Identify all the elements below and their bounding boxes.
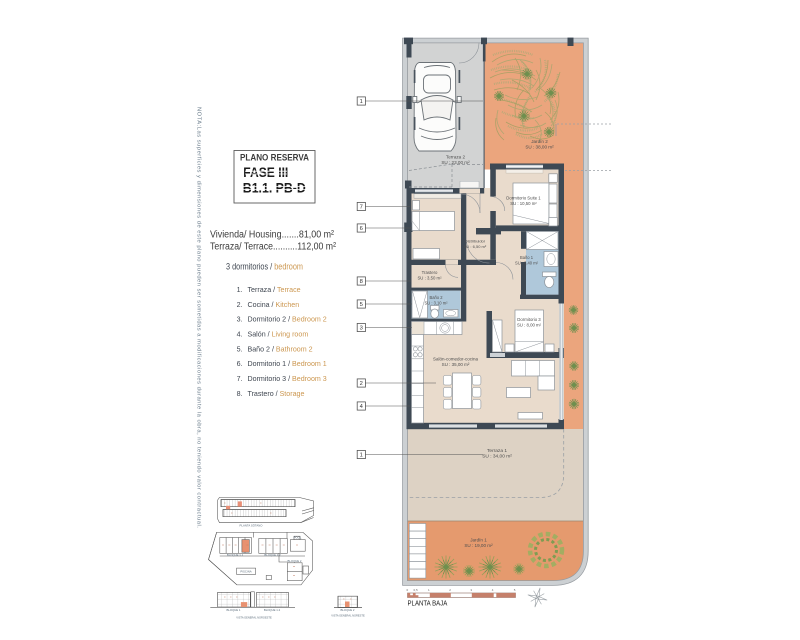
svg-text:Jardín 2: Jardín 2 xyxy=(531,139,548,144)
svg-text:SU : 8,00 m²: SU : 8,00 m² xyxy=(517,323,542,328)
svg-text:BLOQUE 1.2: BLOQUE 1.2 xyxy=(264,608,281,612)
svg-text:6: 6 xyxy=(360,226,363,232)
svg-text:1: 1 xyxy=(360,453,363,459)
svg-text:SU : 6,50 m²: SU : 6,50 m² xyxy=(464,244,487,249)
svg-text:3 dormitorios / bedroom: 3 dormitorios / bedroom xyxy=(226,262,303,272)
svg-text:5.: 5. xyxy=(237,345,243,353)
svg-text:PLANO RESERVA: PLANO RESERVA xyxy=(240,152,309,163)
svg-text:Jardín 1: Jardín 1 xyxy=(470,538,487,543)
svg-text:Salón / Living room: Salón / Living room xyxy=(248,331,309,339)
svg-text:4.: 4. xyxy=(237,331,243,339)
svg-text:1.: 1. xyxy=(237,286,243,294)
svg-text:7.: 7. xyxy=(237,375,243,383)
svg-text:SU : 10,50 m²: SU : 10,50 m² xyxy=(510,201,537,206)
svg-text:VISTA GENERAL NORESTE: VISTA GENERAL NORESTE xyxy=(331,614,365,618)
svg-text:FASE III: FASE III xyxy=(243,165,288,180)
svg-text:SU : 3,40 m²: SU : 3,40 m² xyxy=(515,261,539,266)
svg-text:1: 1 xyxy=(360,99,363,105)
svg-text:SU : 34,00 m²: SU : 34,00 m² xyxy=(482,454,512,460)
svg-text:BLOQUE 2: BLOQUE 2 xyxy=(288,559,302,563)
svg-text:Terraza / Terrace: Terraza / Terrace xyxy=(248,286,301,294)
svg-text:2: 2 xyxy=(360,381,363,387)
svg-text:SU : 38,00 m²: SU : 38,00 m² xyxy=(525,145,554,150)
svg-text:SU : 19,00 m²: SU : 19,00 m² xyxy=(464,543,493,548)
svg-text:Distribuidor: Distribuidor xyxy=(465,239,486,244)
svg-text:Dormitorio 3: Dormitorio 3 xyxy=(517,317,541,322)
svg-text:PLANTA SÓTANO: PLANTA SÓTANO xyxy=(240,522,264,527)
svg-text:SU : 23,00 m²: SU : 23,00 m² xyxy=(441,160,470,165)
svg-text:Dormitorio 2 / Bedroom 2: Dormitorio 2 / Bedroom 2 xyxy=(248,316,327,324)
svg-text:BLOQUE 1.2: BLOQUE 1.2 xyxy=(264,553,281,557)
svg-text:5: 5 xyxy=(360,302,363,308)
svg-text:3.: 3. xyxy=(237,316,243,324)
svg-text:Trastero / Storage: Trastero / Storage xyxy=(248,390,305,398)
svg-text:Baño 2: Baño 2 xyxy=(430,295,444,300)
svg-text:Baño 1: Baño 1 xyxy=(520,255,534,260)
svg-text:Terraza 2: Terraza 2 xyxy=(446,155,466,160)
svg-text:POOL: POOL xyxy=(294,536,302,540)
svg-text:Terraza/ Terrace..........112,: Terraza/ Terrace..........112,00 m² xyxy=(210,242,337,253)
svg-text:Dormitorio 3 / Bedroom 3: Dormitorio 3 / Bedroom 3 xyxy=(248,375,327,383)
svg-text:3: 3 xyxy=(360,326,363,332)
svg-text:SU : 3,10 m²: SU : 3,10 m² xyxy=(425,301,449,306)
svg-text:B1.1. PB-D: B1.1. PB-D xyxy=(243,180,306,196)
svg-text:Dormitorio 1 / Bedroom 1: Dormitorio 1 / Bedroom 1 xyxy=(248,360,327,368)
svg-text:Vivienda/ Housing.......81,00: Vivienda/ Housing.......81,00 m² xyxy=(210,230,335,241)
svg-text:8.: 8. xyxy=(237,390,243,398)
svg-text:2.: 2. xyxy=(237,301,243,309)
svg-text:SU : 3,50 m²: SU : 3,50 m² xyxy=(417,276,442,281)
svg-text:7: 7 xyxy=(360,205,363,211)
svg-text:BLOQUE 1.1: BLOQUE 1.1 xyxy=(227,553,244,557)
svg-text:Trastero: Trastero xyxy=(422,270,438,275)
svg-text:8: 8 xyxy=(360,279,363,285)
svg-text:SU : 35,00 m²: SU : 35,00 m² xyxy=(442,362,470,367)
svg-text:Dormitorio Suite 1: Dormitorio Suite 1 xyxy=(506,196,541,201)
svg-text:NOTA:Las superficies y dimensi: NOTA:Las superficies y dimensiones de es… xyxy=(196,107,202,528)
svg-text:VISTA GENERAL NOROESTE: VISTA GENERAL NOROESTE xyxy=(236,616,272,620)
svg-text:Cocina / Kitchen: Cocina / Kitchen xyxy=(248,301,300,309)
svg-text:PLANTA BAJA: PLANTA BAJA xyxy=(408,601,448,608)
svg-text:Salón-comedor-cocina: Salón-comedor-cocina xyxy=(433,357,479,362)
svg-text:Baño 2 / Bathroom 2: Baño 2 / Bathroom 2 xyxy=(248,345,313,353)
svg-text:PISCINA: PISCINA xyxy=(240,570,251,574)
svg-text:BLOQUE 1: BLOQUE 1 xyxy=(227,608,241,612)
svg-text:0,5: 0,5 xyxy=(414,588,419,592)
svg-text:6.: 6. xyxy=(237,360,243,368)
svg-text:Terraza 1: Terraza 1 xyxy=(487,448,507,454)
svg-text:BLOQUE 2: BLOQUE 2 xyxy=(341,608,355,612)
